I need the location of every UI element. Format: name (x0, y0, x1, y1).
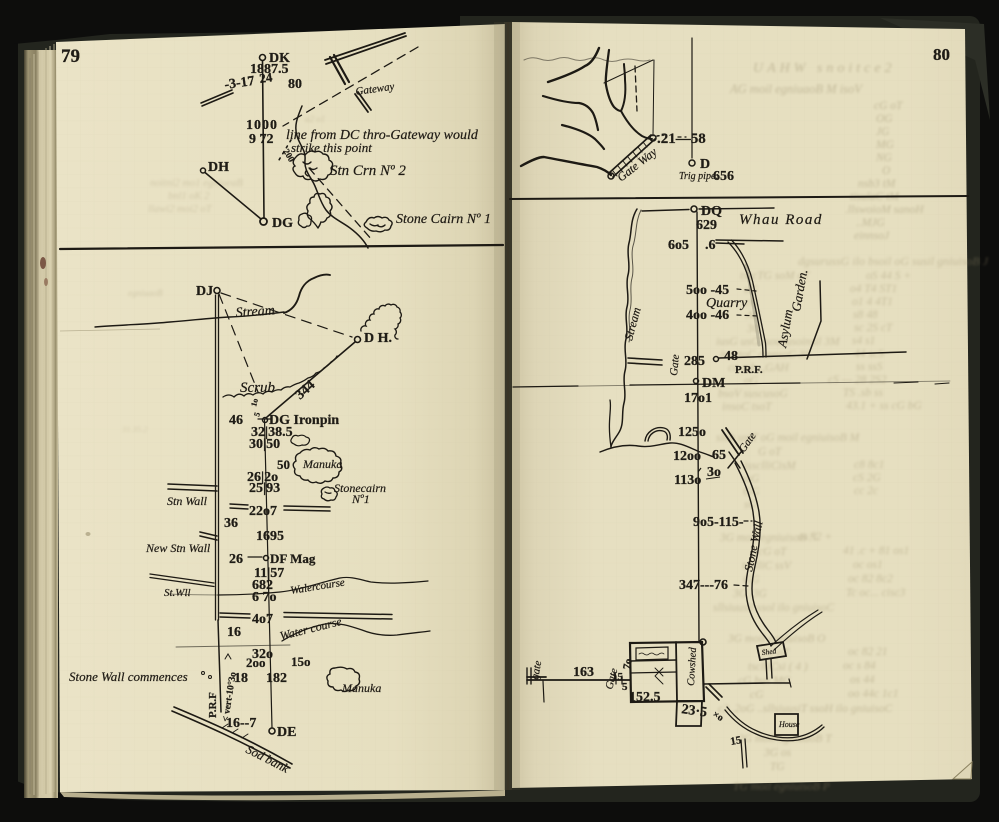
svg-text:65: 65 (712, 448, 726, 463)
svg-text:Manuka: Manuka (302, 457, 342, 471)
svg-text:dgsurussG ilo bsoil oG susil: dgsurussG ilo bsoil oG susil gniuisoB J (798, 254, 989, 268)
svg-text:79: 79 (61, 46, 80, 67)
svg-text:4oo -46: 4oo -46 (686, 308, 729, 323)
svg-text:TG moil egniuisoB P: TG moil egniuisoB P (733, 781, 830, 793)
svg-text:DM: DM (702, 376, 725, 391)
svg-text:oc os1: oc os1 (853, 559, 883, 571)
svg-text:25|93: 25|93 (249, 481, 280, 496)
svg-text:insoC tsoT: insoC tsoT (722, 401, 773, 413)
svg-text:1000: 1000 (246, 118, 278, 133)
svg-text:DJ: DJ (196, 284, 213, 299)
svg-text:JG: JG (876, 126, 890, 138)
svg-text:12oo: 12oo (673, 449, 701, 464)
svg-text:Scrub: Scrub (240, 380, 275, 396)
svg-text:TG: TG (770, 761, 785, 773)
svg-text:22o7: 22o7 (249, 504, 277, 519)
svg-text:125o: 125o (678, 425, 706, 440)
svg-text:cG bus MG: cG bus MG (738, 675, 792, 687)
svg-text:slob usiT oG moil egniuisoB: slob usiT oG moil egniuisoB M (716, 432, 861, 444)
svg-text:cG: cG (750, 689, 764, 701)
svg-text:Nº1: Nº1 (351, 492, 370, 506)
svg-text:cS — 28 2S2: cS — 28 2S2 (828, 374, 887, 386)
svg-text:DQ: DQ (701, 204, 722, 219)
svg-text:NG: NG (875, 152, 893, 164)
svg-text:oG: oG (744, 375, 759, 387)
svg-text:DF Mag: DF Mag (270, 551, 316, 566)
svg-text:s8 48: s8 48 (853, 309, 878, 321)
svg-text:strike this point: strike this point (291, 140, 372, 155)
svg-text:80: 80 (933, 45, 950, 64)
svg-text:c8 8c1: c8 8c1 (854, 459, 884, 471)
svg-text:113o: 113o (674, 473, 701, 488)
svg-text:Stn Wall: Stn Wall (167, 494, 208, 508)
svg-text:tsclliCsi ( 4 ): tsclliCsi ( 4 ) (748, 661, 808, 673)
svg-text:ss ssS: ss ssS (856, 361, 883, 373)
svg-text:41 .c + 81 os1: 41 .c + 81 os1 (843, 545, 909, 557)
svg-text:Manuka: Manuka (341, 681, 381, 695)
svg-text:o1 4 4T1: o1 4 4T1 (852, 296, 893, 308)
svg-text:St.Wll: St.Wll (164, 587, 191, 599)
svg-text:oc 82 8c2: oc 82 8c2 (848, 573, 893, 585)
svg-text:sllsiuusil ssol ilo gniuisoC: sllsiuusil ssol ilo gniuisoC (713, 602, 834, 614)
svg-text:26: 26 (229, 552, 243, 567)
svg-text:36: 36 (224, 516, 238, 531)
svg-text:einnsoJ: einnsoJ (854, 230, 890, 242)
svg-text:Stone Cairn Nº 1: Stone Cairn Nº 1 (396, 212, 491, 227)
svg-text:Whau Road: Whau Road (739, 212, 823, 228)
svg-text:347---76: 347---76 (679, 578, 728, 593)
svg-text:DE: DE (277, 725, 296, 740)
svg-text:3G os: 3G os (763, 747, 792, 759)
svg-text:182: 182 (266, 671, 287, 686)
svg-text:629: 629 (696, 218, 717, 233)
svg-text:..MJG: ..MJG (856, 217, 885, 229)
svg-text:TS .sb ss: TS .sb ss (843, 387, 883, 399)
svg-text:os 44: os 44 (850, 674, 875, 686)
svg-text:AG moil egniuaoB M isoV: AG moil egniuaoB M isoV (729, 82, 863, 96)
svg-text:oc s 84: oc s 84 (843, 660, 876, 672)
svg-text:Tc oc... cisc3: Tc oc... cisc3 (846, 587, 906, 599)
svg-text:cc 2c: cc 2c (854, 485, 878, 497)
svg-text:P.R.F: P.R.F (207, 692, 219, 718)
svg-text:.21—58: .21—58 (657, 131, 706, 147)
svg-text:15o: 15o (291, 654, 311, 669)
svg-text:Cowshed: Cowshed (686, 646, 699, 686)
svg-text:48: 48 (724, 349, 738, 364)
svg-text:Stone Wall commences: Stone Wall commences (69, 669, 188, 684)
svg-text:cG oT: cG oT (758, 546, 788, 558)
svg-text:17o1: 17o1 (684, 391, 712, 406)
svg-text:a2 o1: a2 o1 (305, 114, 325, 124)
svg-text:oS 44 S +: oS 44 S + (866, 270, 911, 282)
svg-text:5: 5 (622, 681, 628, 693)
svg-text:3G moil egniuisoB N: 3G moil egniuisoB N (719, 532, 818, 544)
svg-text:New Stn Wall: New Stn Wall (145, 541, 211, 555)
svg-text:MG: MG (875, 139, 895, 151)
svg-text:Stn Crn Nº 2: Stn Crn Nº 2 (330, 163, 406, 179)
svg-text:bnl1 oK 2: bnl1 oK 2 (168, 191, 210, 202)
svg-text:4o7: 4o7 (252, 612, 273, 627)
svg-text:50: 50 (277, 457, 290, 472)
svg-text:16: 16 (227, 625, 241, 640)
svg-text:issclliCisM: issclliCisM (744, 460, 797, 472)
svg-text:3G .3G: 3G .3G (732, 588, 768, 600)
svg-text:656: 656 (713, 169, 734, 184)
svg-text:2oo: 2oo (246, 655, 266, 670)
svg-text:DG: DG (272, 216, 293, 231)
svg-text:163: 163 (573, 665, 594, 680)
svg-text:Gate: Gate (668, 354, 682, 376)
svg-text:9 72: 9 72 (249, 132, 274, 147)
svg-text:Stream: Stream (235, 303, 275, 321)
svg-text:O: O (882, 165, 891, 177)
svg-text:152.5: 152.5 (629, 690, 661, 705)
svg-text:egniuaoB: egniuaoB (128, 288, 163, 298)
svg-text:G oT: G oT (758, 446, 783, 458)
svg-text:sc 2S cT: sc 2S cT (854, 322, 894, 334)
svg-text:bsoV suscusoG: bsoV suscusoG (718, 388, 788, 400)
svg-text:6 7o: 6 7o (252, 590, 277, 605)
svg-text:cS 2G: cS 2G (853, 472, 881, 484)
svg-text:o4 T4 ST1: o4 T4 ST1 (850, 283, 897, 295)
svg-text:D H.: D H. (364, 331, 392, 346)
svg-text:OG: OG (876, 113, 893, 125)
svg-text:D: D (700, 157, 710, 172)
svg-text:P.R.F.: P.R.F. (735, 364, 763, 376)
svg-text:80: 80 (288, 77, 302, 92)
svg-text:UAHW snoitce2: UAHW snoitce2 (753, 61, 896, 76)
svg-text:1695: 1695 (256, 529, 284, 544)
svg-text:oc 82 21: oc 82 21 (848, 646, 888, 658)
svg-text:llawi2 moi2 oT: llawi2 moi2 oT (148, 204, 213, 215)
svg-text:6o5: 6o5 (668, 238, 689, 253)
svg-text:31.35.2: 31.35.2 (121, 424, 148, 434)
svg-text:9o5-115-: 9o5-115- (693, 515, 744, 530)
svg-text:c2 .2oG ..sllsiuusiT ssoH ilo: c2 .2oG ..sllsiuusiT ssoH ilo gniuisoC (718, 703, 893, 715)
svg-text:s4 s1: s4 s1 (852, 335, 875, 347)
svg-text:noitni2 mo1 egniueaB: noitni2 mo1 egniueaB (150, 178, 243, 189)
svg-text:DH: DH (208, 160, 229, 175)
svg-text:24: 24 (258, 69, 273, 86)
svg-text:285: 285 (684, 354, 705, 369)
svg-text:House: House (778, 720, 800, 729)
svg-text:46: 46 (229, 413, 243, 428)
svg-text:cG oT: cG oT (874, 100, 904, 112)
svg-text:.6: .6 (705, 238, 716, 253)
svg-text:.llswoioM sanoH: .llswoioM sanoH (845, 204, 924, 216)
svg-text:43.1 + ss cG bG: 43.1 + ss cG bG (846, 400, 922, 412)
svg-text:nsb3 tM: nsb3 tM (858, 178, 897, 190)
svg-text:30|50: 30|50 (249, 437, 280, 452)
svg-text:Shed: Shed (761, 646, 777, 657)
svg-text:oo 44c 1c1: oo 44c 1c1 (848, 688, 898, 700)
svg-text:16--7: 16--7 (226, 716, 256, 731)
